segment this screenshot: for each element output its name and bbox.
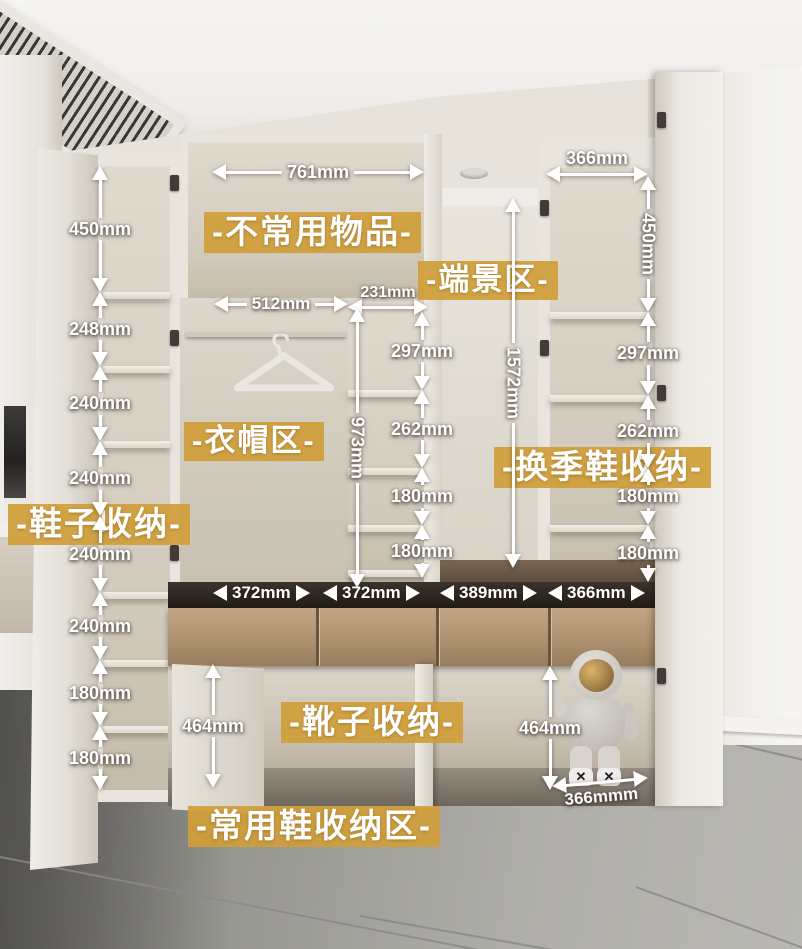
measure-label: 248mm [69,318,131,341]
measure-left-180-1: 180mm [83,660,117,726]
measure-left-240-3: 240mm [83,516,117,592]
measure-top-761: 761mm [212,164,424,180]
measure-label: 240mm [69,392,131,415]
hinge [170,545,179,561]
measure-drawer-389: 389mm [440,585,542,601]
measure-label: 180mm [69,682,131,705]
arrow-left-icon [546,166,560,182]
drawer-seam [316,608,319,666]
arrow-down-icon [205,774,221,788]
measure-drawer-372-2: 372mm [323,585,427,601]
arrow-up-icon [414,390,430,404]
arrow-right-icon [631,585,645,601]
measure-left-240-2: 240mm [83,441,117,516]
measure-right-450: 450mm [631,176,665,312]
arrow-up-icon [414,525,430,539]
arrow-down-icon [92,502,108,516]
measure-label: 180mm [69,747,131,770]
mirror-reflection [4,406,26,498]
zone-label-infrequent-items: -不常用物品- [204,212,421,253]
measure-label: 240mm [69,543,131,566]
arrow-up-icon [92,292,108,306]
hinge [657,668,666,684]
arrow-up-icon [542,666,558,680]
arrow-down-icon [92,578,108,592]
arrow-down-icon [92,427,108,441]
arrow-down-icon [92,776,108,790]
arrow-up-icon [414,468,430,482]
arrow-left-icon [213,585,227,601]
arrow-right-icon [523,585,537,601]
measure-label: 240mm [69,467,131,490]
measure-label: 450mm [638,209,659,279]
measure-left-450: 450mm [83,166,117,292]
arrow-down-icon [505,554,521,568]
measure-label: 372mm [337,583,406,603]
arrow-down-icon [92,712,108,726]
arrow-right-icon [410,164,424,180]
measure-right-297: 297mm [631,312,665,395]
arrow-up-icon [640,176,656,190]
arrow-down-icon [414,376,430,390]
arrow-down-icon [414,564,430,578]
arrow-up-icon [640,525,656,539]
arrow-down-icon [414,511,430,525]
arrow-right-icon [406,585,420,601]
measure-label: 389mm [454,583,523,603]
measure-label: 180mm [391,485,453,508]
arrow-up-icon [205,664,221,678]
arrow-up-icon [92,441,108,455]
measure-boot-left-464: 464mm [196,664,230,788]
hinge [170,175,179,191]
arrow-left-icon [214,296,228,312]
zone-label-end-scene-area: -端景区- [418,261,558,300]
arrow-down-icon [640,381,656,395]
arrow-up-icon [92,166,108,180]
arrow-up-icon [349,308,365,322]
arrow-up-icon [92,366,108,380]
measure-label: 366mm [562,583,631,603]
arrow-up-icon [92,516,108,530]
measure-label: 512mm [247,294,316,314]
arrow-up-icon [92,592,108,606]
measure-label: 450mm [69,218,131,241]
arrow-up-icon [505,198,521,212]
arrow-up-icon [92,726,108,740]
zone-label-daily-shoe-storage: -常用鞋收纳区- [188,806,440,847]
arrow-left-icon [548,585,562,601]
measure-hanging-973: 973mm [340,308,374,588]
arrow-right-icon [296,585,310,601]
measure-label: 180mm [617,542,679,565]
recessed-light [460,168,488,179]
measure-left-180-2: 180mm [83,726,117,790]
measure-right-180-1: 180mm [631,468,665,525]
measure-label: 1572mm [503,343,524,423]
hinge [540,200,549,216]
hanger-icon [228,334,340,406]
measure-drawer-366: 366mm [548,585,648,601]
drawer-seam [436,608,439,666]
measure-mid-180-1: 180mm [405,468,439,525]
arrow-left-icon [440,585,454,601]
arrow-down-icon [640,568,656,582]
measure-left-240-1: 240mm [83,366,117,441]
bear-gold-visor [579,659,614,692]
measure-label: 262mm [617,420,679,443]
measure-right-180-2: 180mm [631,525,665,582]
measure-label: 297mm [391,340,453,363]
arrow-down-icon [92,646,108,660]
annotated-wardrobe-photo: ✕ ✕ -鞋子收纳- -不常用物品- -衣帽区- -端景区- -换季鞋收纳- -… [0,0,802,949]
arrow-down-icon [640,298,656,312]
measure-label: 372mm [227,583,296,603]
arrow-down-icon [92,352,108,366]
arrow-up-icon [640,312,656,326]
arrow-left-icon [212,164,226,180]
arrow-down-icon [640,511,656,525]
measure-mid-180-2: 180mm [405,525,439,578]
arrow-down-icon [92,278,108,292]
zone-label-clothing-area: -衣帽区- [184,422,324,461]
measure-hanging-512: 512mm [214,296,348,312]
measure-label: 180mm [617,485,679,508]
measure-label: 297mm [617,342,679,365]
measure-label: 366mm [561,148,633,169]
arrow-up-icon [640,395,656,409]
measure-left-240-4: 240mm [83,592,117,660]
arrow-up-icon [640,468,656,482]
zone-label-boot-storage: -靴子收纳- [281,702,463,743]
hinge [540,340,549,356]
arrow-down-icon [640,454,656,468]
measure-label: 180mm [391,540,453,563]
arrow-left-icon [323,585,337,601]
arrow-up-icon [92,660,108,674]
arrow-down-icon [414,454,430,468]
measure-drawer-372-1: 372mm [213,585,313,601]
measure-label: 973mm [347,413,368,483]
measure-label: 231mm [355,284,420,302]
measure-left-248: 248mm [83,292,117,366]
hinge [657,112,666,128]
measure-label: 262mm [391,418,453,441]
measure-label: 761mm [282,162,354,183]
measure-label: 240mm [69,615,131,638]
measure-right-262: 262mm [631,395,665,468]
measure-label: 464mm [519,717,581,740]
measure-mid-262: 262mm [405,390,439,468]
measure-nook-1572: 1572mm [496,198,530,568]
measure-label: 464mm [182,715,244,738]
arrow-up-icon [414,312,430,326]
hinge [170,330,179,346]
measure-mid-297: 297mm [405,312,439,390]
measure-boot-right-464: 464mm [533,666,567,790]
